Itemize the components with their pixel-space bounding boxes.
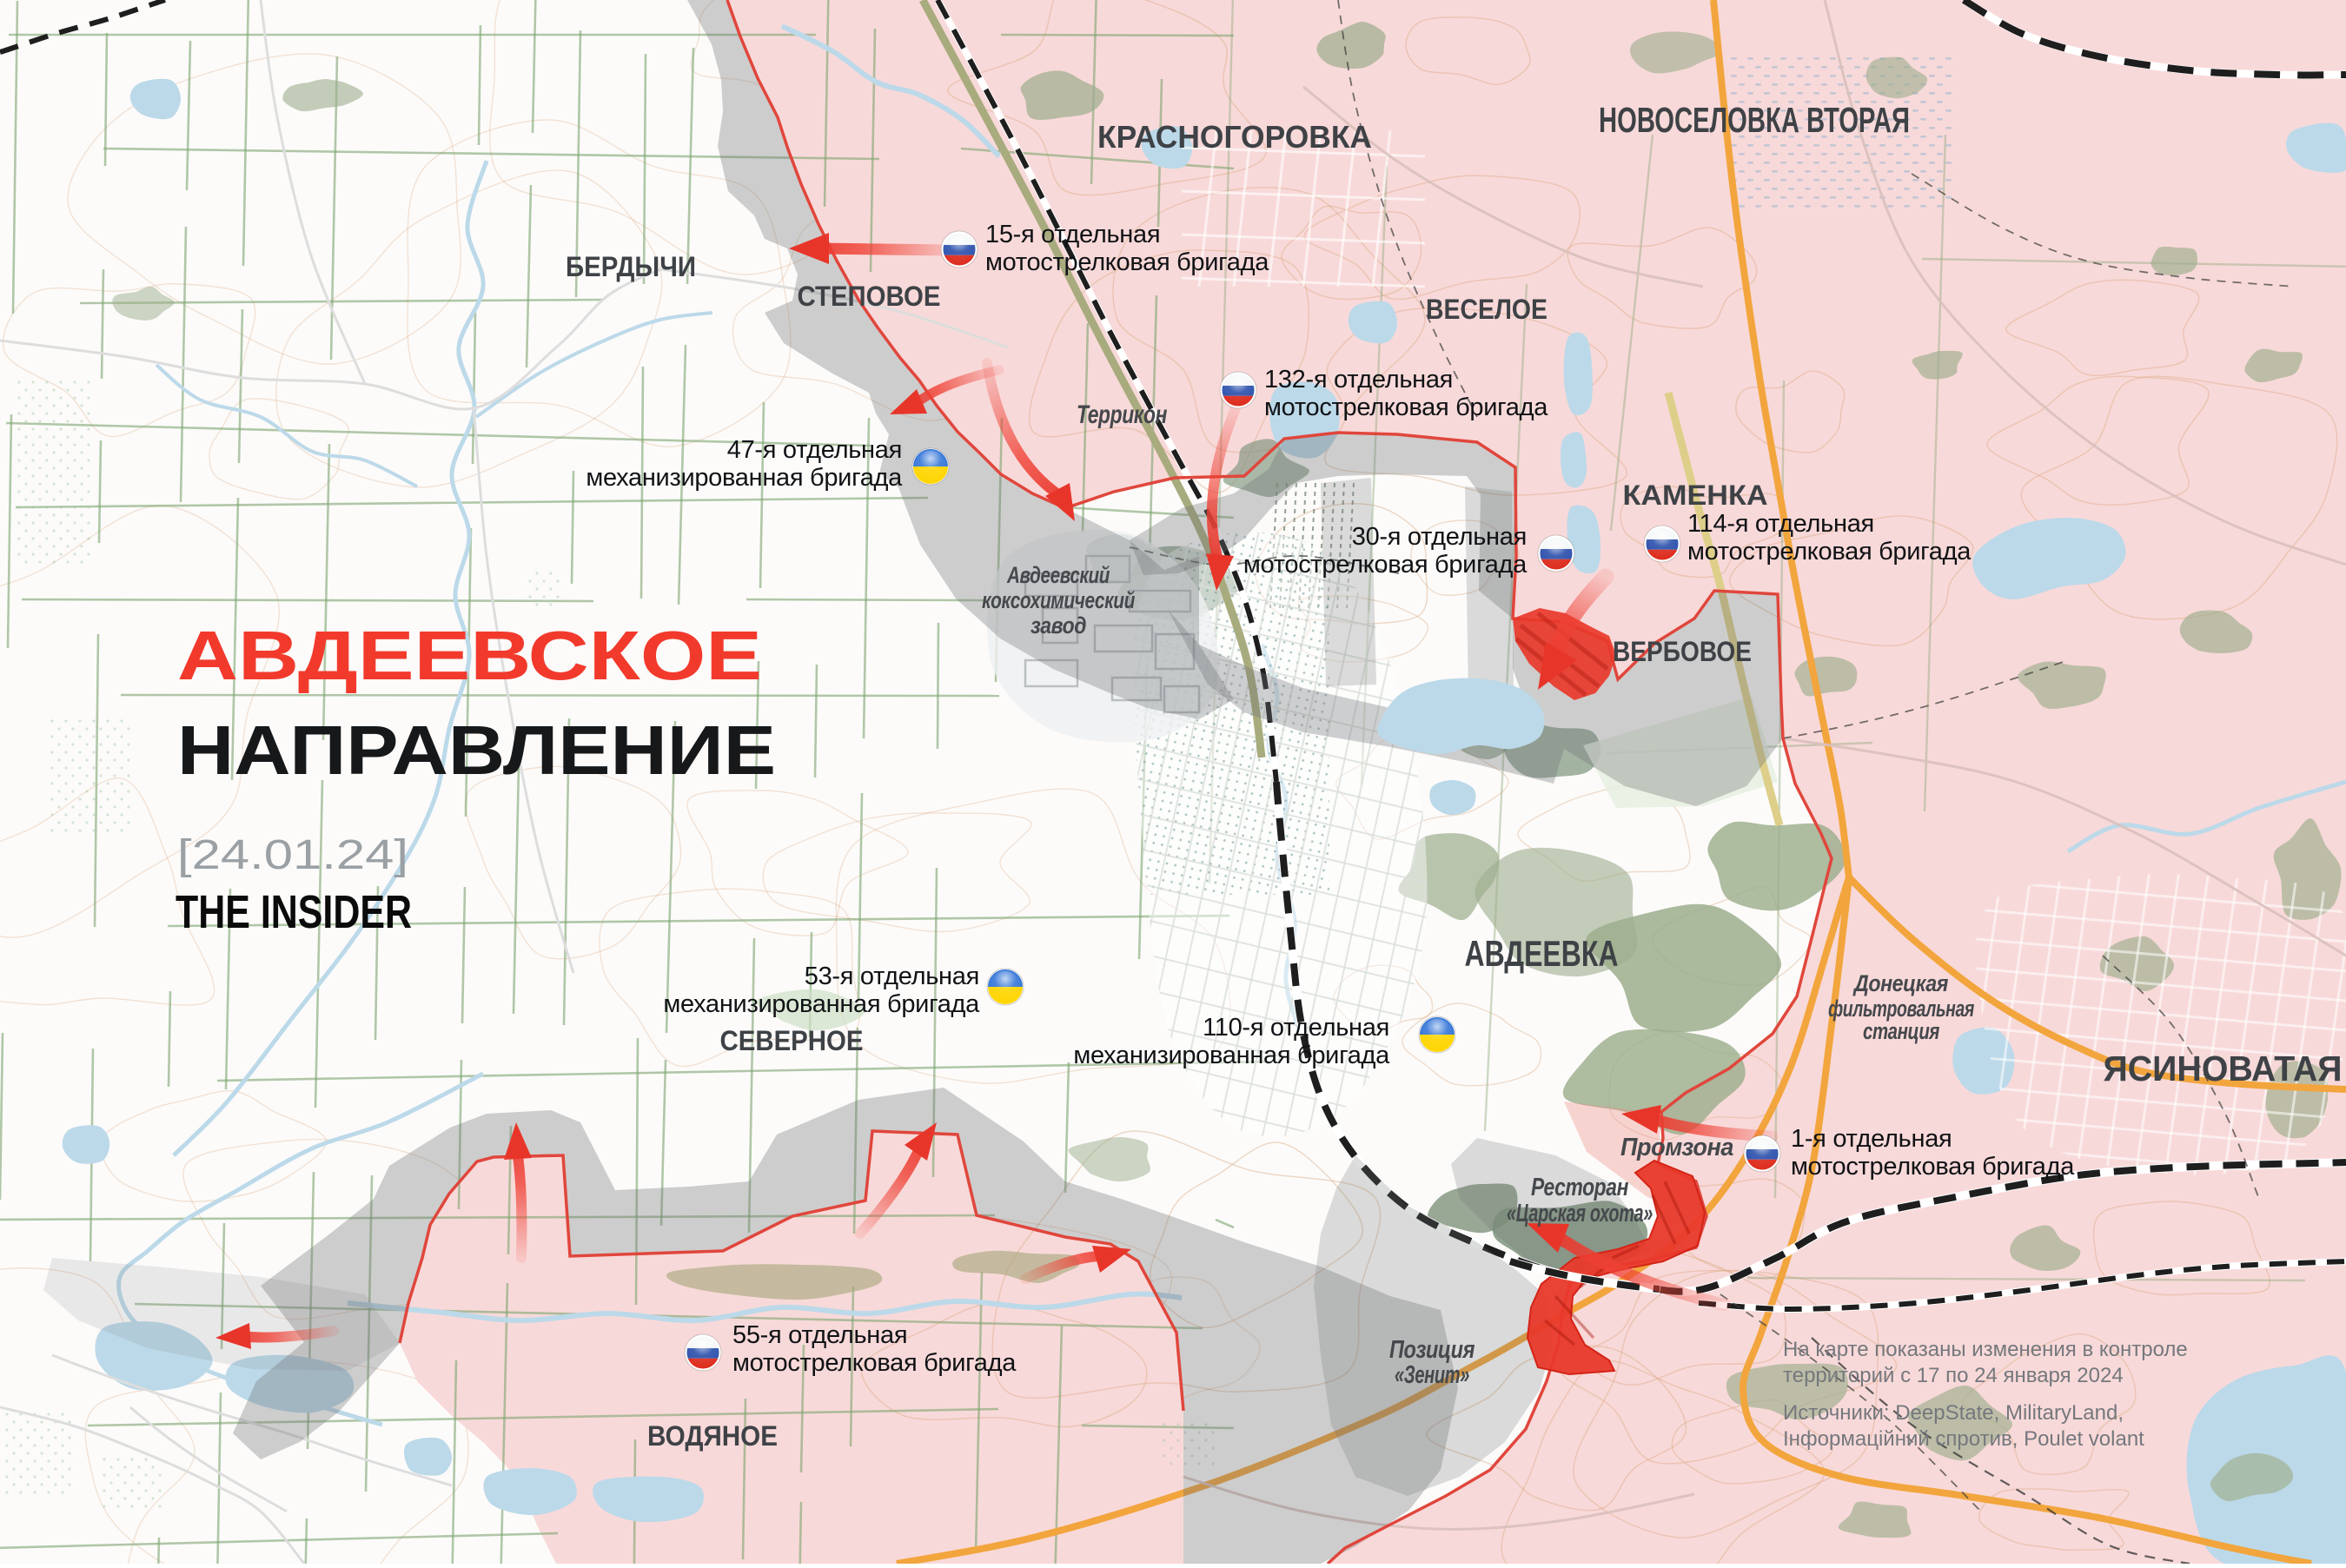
svg-text:Донецкая: Донецкая xyxy=(1852,970,1948,996)
svg-text:Позиция: Позиция xyxy=(1389,1336,1475,1364)
svg-text:БЕРДЫЧИ: БЕРДЫЧИ xyxy=(566,251,696,282)
svg-text:НОВОСЕЛОВКА ВТОРАЯ: НОВОСЕЛОВКА ВТОРАЯ xyxy=(1599,100,1910,140)
svg-text:55-я отдельная: 55-я отдельная xyxy=(732,1321,907,1349)
svg-text:53-я отдельная: 53-я отдельная xyxy=(805,963,979,990)
svg-text:станция: станция xyxy=(1863,1018,1939,1044)
svg-text:территорий с 17 по 24 января 2: территорий с 17 по 24 января 2024 xyxy=(1783,1364,2124,1387)
svg-text:КАМЕНКА: КАМЕНКА xyxy=(1623,480,1768,511)
svg-text:114-я отдельная: 114-я отдельная xyxy=(1687,510,1874,538)
svg-text:мотострелковая бригада: мотострелковая бригада xyxy=(1791,1153,2075,1181)
svg-text:47-я отдельная: 47-я отдельная xyxy=(727,436,902,464)
svg-text:мотострелковая бригада: мотострелковая бригада xyxy=(1264,394,1548,421)
svg-text:«Зенит»: «Зенит» xyxy=(1395,1361,1469,1389)
svg-text:Источники: DeepState, Military: Источники: DeepState, MilitaryLand, xyxy=(1783,1401,2124,1425)
svg-text:«Царская охота»: «Царская охота» xyxy=(1507,1200,1653,1227)
svg-text:мотострелковая бригада: мотострелковая бригада xyxy=(1243,551,1528,579)
svg-text:мотострелковая бригада: мотострелковая бригада xyxy=(732,1349,1017,1377)
svg-text:110-я отдельная: 110-я отдельная xyxy=(1203,1014,1389,1042)
svg-text:коксохимический: коксохимический xyxy=(982,587,1136,613)
svg-text:механизированная бригада: механизированная бригада xyxy=(1073,1042,1390,1069)
svg-text:ВЕСЕЛОЕ: ВЕСЕЛОЕ xyxy=(1426,294,1547,325)
svg-text:механизированная бригада: механизированная бригада xyxy=(663,990,980,1018)
svg-text:ВЕРБОВОЕ: ВЕРБОВОЕ xyxy=(1613,636,1752,667)
svg-text:мотострелковая бригада: мотострелковая бригада xyxy=(985,248,1269,276)
svg-text:Авдеевский: Авдеевский xyxy=(1006,562,1110,588)
svg-text:THE INSIDER: THE INSIDER xyxy=(176,886,412,938)
svg-text:Промзона: Промзона xyxy=(1620,1134,1733,1161)
svg-text:ВОДЯНОЕ: ВОДЯНОЕ xyxy=(647,1420,778,1452)
svg-text:1-я отдельная: 1-я отдельная xyxy=(1791,1125,1952,1153)
svg-text:СЕВЕРНОЕ: СЕВЕРНОЕ xyxy=(720,1025,864,1056)
svg-text:завод: завод xyxy=(1031,612,1086,638)
svg-text:НАПРАВЛЕНИЕ: НАПРАВЛЕНИЕ xyxy=(177,711,776,789)
svg-text:механизированная бригада: механизированная бригада xyxy=(586,464,903,492)
svg-text:[24.01.24]: [24.01.24] xyxy=(177,832,408,878)
svg-text:ЯСИНОВАТАЯ: ЯСИНОВАТАЯ xyxy=(2104,1049,2343,1088)
svg-text:Террикон: Террикон xyxy=(1077,400,1167,429)
svg-text:132-я отдельная: 132-я отдельная xyxy=(1264,366,1453,394)
svg-text:30-я отдельная: 30-я отдельная xyxy=(1352,523,1527,551)
svg-text:Інформаційний спротив, Poulet: Інформаційний спротив, Poulet volant xyxy=(1783,1427,2144,1451)
svg-text:15-я отдельная: 15-я отдельная xyxy=(985,221,1160,248)
svg-text:АВДЕЕВСКОЕ: АВДЕЕВСКОЕ xyxy=(177,617,762,694)
svg-text:Ресторан: Ресторан xyxy=(1531,1174,1628,1201)
svg-text:мотострелковая бригада: мотострелковая бригада xyxy=(1687,538,1972,566)
svg-text:СТЕПОВОЕ: СТЕПОВОЕ xyxy=(798,281,941,312)
svg-text:КРАСНОГОРОВКА: КРАСНОГОРОВКА xyxy=(1097,119,1372,155)
svg-text:На карте показаны изменения в: На карте показаны изменения в контроле xyxy=(1783,1338,2188,1361)
svg-text:АВДЕЕВКА: АВДЕЕВКА xyxy=(1465,933,1619,974)
